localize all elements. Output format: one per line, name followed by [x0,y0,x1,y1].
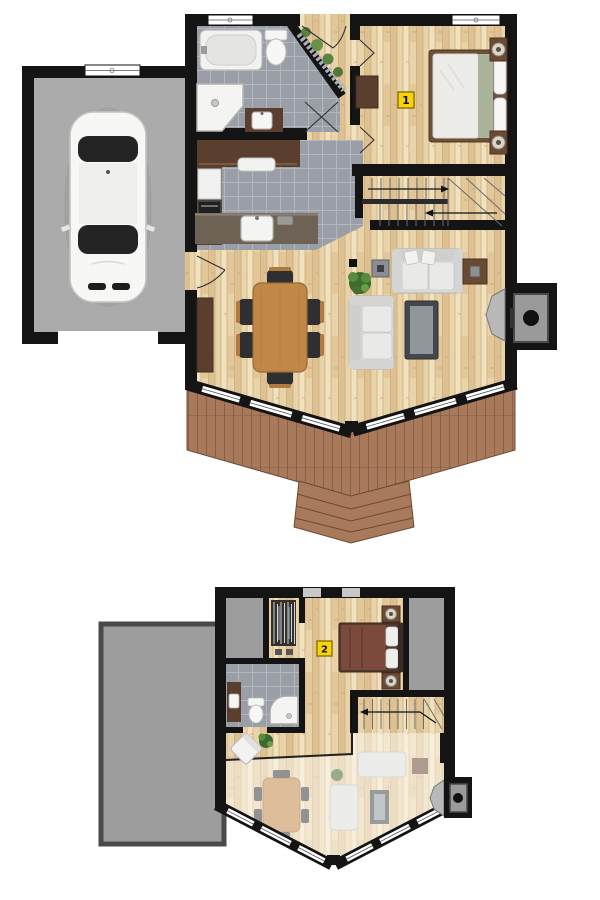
bathroom-vanity [245,108,283,132]
nightstand-top [490,38,507,61]
garage-door-opening [58,331,158,345]
nightstand-bottom [490,131,507,154]
tv-stand [463,259,487,284]
upper-stair-right-stub [440,733,446,763]
stair-left-wall [355,176,363,218]
upper-floor-plan: 2 [101,587,472,870]
upper-vanity [227,682,241,722]
bed-1 [429,50,507,142]
garage-roof [101,624,224,844]
sofa [392,249,463,293]
bathroom-top-wall [222,658,305,664]
bed-2 [339,623,403,672]
attic-right-wall [403,595,409,690]
loveseat [349,296,394,369]
toilet [265,30,287,65]
bay-point-cap [345,421,358,432]
shoes [275,649,282,655]
bedroom2-bottom-wall [352,690,444,697]
tub-faucet [201,46,207,54]
left-wall [185,14,197,390]
closet-right-wall [299,595,305,623]
roof-window-mark [303,588,321,597]
dining-chair [236,332,255,358]
small-appliance [277,216,293,225]
upper-toilet [248,698,264,723]
main-floor-plan: 1 [22,14,557,543]
upper-nightstand-top [382,606,400,622]
upper-right-wall [444,587,455,808]
upper-bathroom-right-wall [299,658,305,727]
upper-top-wall [215,587,455,598]
room-marker-1: 1 [398,92,414,108]
upper-nightstand-bottom [382,673,400,689]
upper-left-wall [215,587,226,808]
room-marker-1-label: 1 [402,94,410,107]
buffet [197,298,213,372]
dresser [356,76,378,108]
window-bathroom [208,15,253,25]
upper-bathroom-door-opening [243,727,267,733]
attic-storage-left [226,598,263,658]
attic-storage-right [409,598,444,690]
dining-chair [305,332,324,358]
room-marker-2: 2 [317,641,332,656]
dining-table [253,283,307,372]
roof-window-mark-2 [342,588,360,597]
bedroom-bottom-wall [352,164,517,176]
dining-chair [305,299,324,325]
hanging-clothes [271,600,296,646]
upper-bay-point-cap [327,855,340,865]
window-bedroom [452,15,500,25]
dishwasher [238,158,275,171]
coffee-table [405,301,438,359]
fridge [198,169,221,199]
bedroom-wall-stub [350,26,360,40]
speaker [349,259,357,267]
floor-plan-page: 1 [0,0,600,900]
garage-window [85,65,140,76]
garage-left-wall [22,66,34,344]
car [61,107,156,307]
side-table [372,260,389,277]
shoes-2 [286,649,293,655]
garage [22,65,189,345]
attic-left-wall [263,598,269,658]
bathtub [200,30,262,70]
room-marker-2-label: 2 [321,645,328,656]
upper-corner-shower [270,696,298,724]
floor-plan-canvas: 1 [0,0,600,900]
upper-stair-left-wall [350,690,358,733]
stair-bottom-wall [370,220,505,230]
dining-chair [236,299,255,325]
kitchen-peninsula [195,213,318,244]
